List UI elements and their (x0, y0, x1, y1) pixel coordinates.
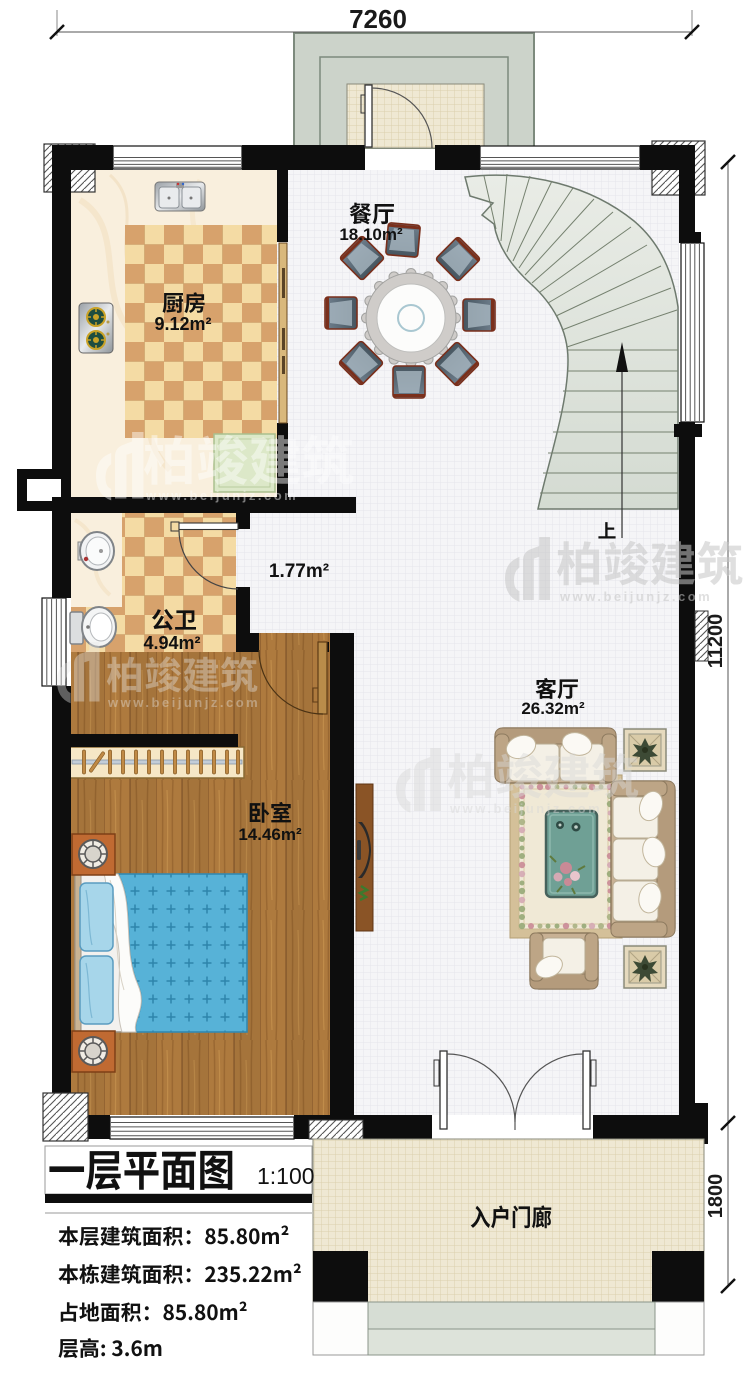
svg-text:4.94m²: 4.94m² (143, 633, 200, 653)
svg-text:11200: 11200 (705, 614, 727, 669)
svg-text:www.beijunjz.com: www.beijunjz.com (145, 488, 298, 503)
svg-text:1800: 1800 (705, 1174, 727, 1219)
svg-text:1.77m²: 1.77m² (269, 561, 329, 582)
svg-text:18.10m²: 18.10m² (339, 225, 403, 244)
svg-text:14.46m²: 14.46m² (238, 825, 302, 844)
svg-text:9.12m²: 9.12m² (154, 314, 211, 334)
svg-text:www.beijunjz.com: www.beijunjz.com (449, 801, 602, 816)
svg-text:26.32m²: 26.32m² (521, 699, 585, 718)
svg-text:www.beijunjz.com: www.beijunjz.com (559, 589, 712, 604)
svg-text:1:100: 1:100 (257, 1163, 315, 1189)
svg-text:7260: 7260 (349, 4, 407, 34)
svg-text:www.beijunjz.com: www.beijunjz.com (107, 695, 260, 710)
